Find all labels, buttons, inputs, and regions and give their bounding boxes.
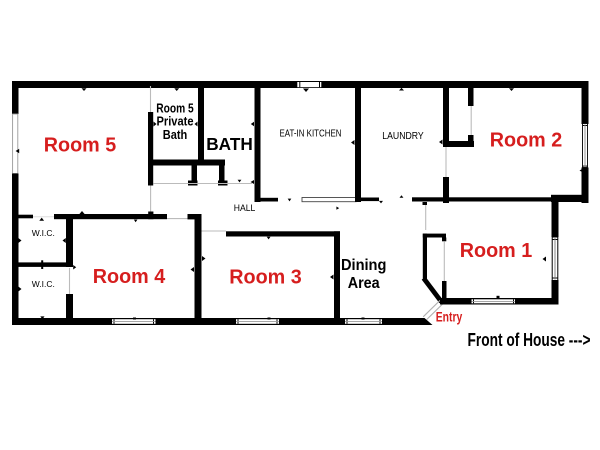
svg-text:Room 1: Room 1 — [460, 239, 533, 262]
svg-text:Bath: Bath — [163, 128, 188, 142]
svg-text:Room 5: Room 5 — [44, 134, 117, 157]
svg-text:Room 2: Room 2 — [490, 129, 563, 152]
svg-text:Dining: Dining — [341, 257, 387, 274]
svg-text:Front of House --->: Front of House ---> — [468, 330, 591, 350]
svg-text:Area: Area — [348, 275, 380, 292]
svg-text:Room 4: Room 4 — [93, 265, 166, 288]
svg-text:Entry: Entry — [436, 310, 463, 325]
svg-text:W.I.C.: W.I.C. — [32, 229, 55, 238]
svg-text:Room 3: Room 3 — [229, 266, 302, 289]
svg-text:Room 5: Room 5 — [156, 102, 194, 116]
svg-text:BATH: BATH — [206, 134, 253, 154]
svg-text:EAT-IN KITCHEN: EAT-IN KITCHEN — [280, 129, 342, 140]
svg-text:LAUNDRY: LAUNDRY — [382, 131, 424, 142]
svg-text:Private: Private — [157, 115, 194, 129]
svg-text:HALL: HALL — [234, 203, 256, 214]
svg-text:W.I.C.: W.I.C. — [32, 280, 55, 289]
